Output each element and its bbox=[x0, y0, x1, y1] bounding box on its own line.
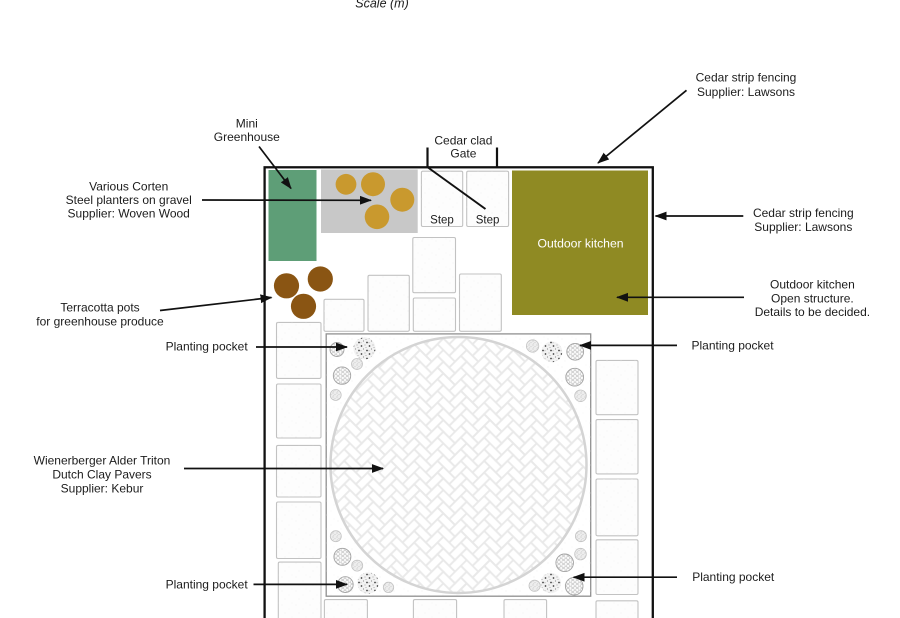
svg-text:Cedar strip fencing: Cedar strip fencing bbox=[753, 206, 854, 220]
svg-text:Supplier: Lawsons: Supplier: Lawsons bbox=[754, 220, 852, 234]
svg-text:Open structure.: Open structure. bbox=[771, 292, 854, 306]
svg-text:Dutch Clay Pavers: Dutch Clay Pavers bbox=[52, 468, 151, 482]
svg-text:Supplier: Kebur: Supplier: Kebur bbox=[61, 482, 144, 496]
svg-text:Cedar strip fencing: Cedar strip fencing bbox=[696, 71, 797, 85]
svg-text:Gate: Gate bbox=[450, 147, 476, 161]
svg-text:Step: Step bbox=[476, 215, 500, 227]
svg-text:Outdoor kitchen: Outdoor kitchen bbox=[537, 237, 623, 251]
svg-text:Scale (m): Scale (m) bbox=[355, 0, 408, 11]
svg-text:Steel planters on gravel: Steel planters on gravel bbox=[66, 193, 192, 207]
svg-text:Wienerberger Alder Triton: Wienerberger Alder Triton bbox=[34, 454, 171, 468]
svg-text:Planting pocket: Planting pocket bbox=[166, 340, 249, 354]
svg-text:Greenhouse: Greenhouse bbox=[214, 130, 280, 144]
svg-text:Terracotta pots: Terracotta pots bbox=[60, 301, 139, 315]
svg-text:Outdoor kitchen: Outdoor kitchen bbox=[770, 278, 855, 292]
svg-text:Planting pocket: Planting pocket bbox=[692, 339, 775, 353]
svg-text:Mini: Mini bbox=[236, 117, 258, 131]
svg-text:Supplier: Lawsons: Supplier: Lawsons bbox=[697, 85, 795, 99]
svg-text:Planting pocket: Planting pocket bbox=[166, 578, 249, 592]
svg-text:Various Corten: Various Corten bbox=[89, 180, 168, 194]
svg-text:Planting pocket: Planting pocket bbox=[692, 570, 775, 584]
svg-text:for greenhouse produce: for greenhouse produce bbox=[36, 315, 164, 329]
svg-text:Step: Step bbox=[430, 215, 454, 227]
svg-text:Cedar clad: Cedar clad bbox=[434, 134, 492, 148]
svg-text:Supplier: Woven Wood: Supplier: Woven Wood bbox=[68, 207, 190, 221]
svg-text:Details to be decided.: Details to be decided. bbox=[755, 305, 870, 319]
